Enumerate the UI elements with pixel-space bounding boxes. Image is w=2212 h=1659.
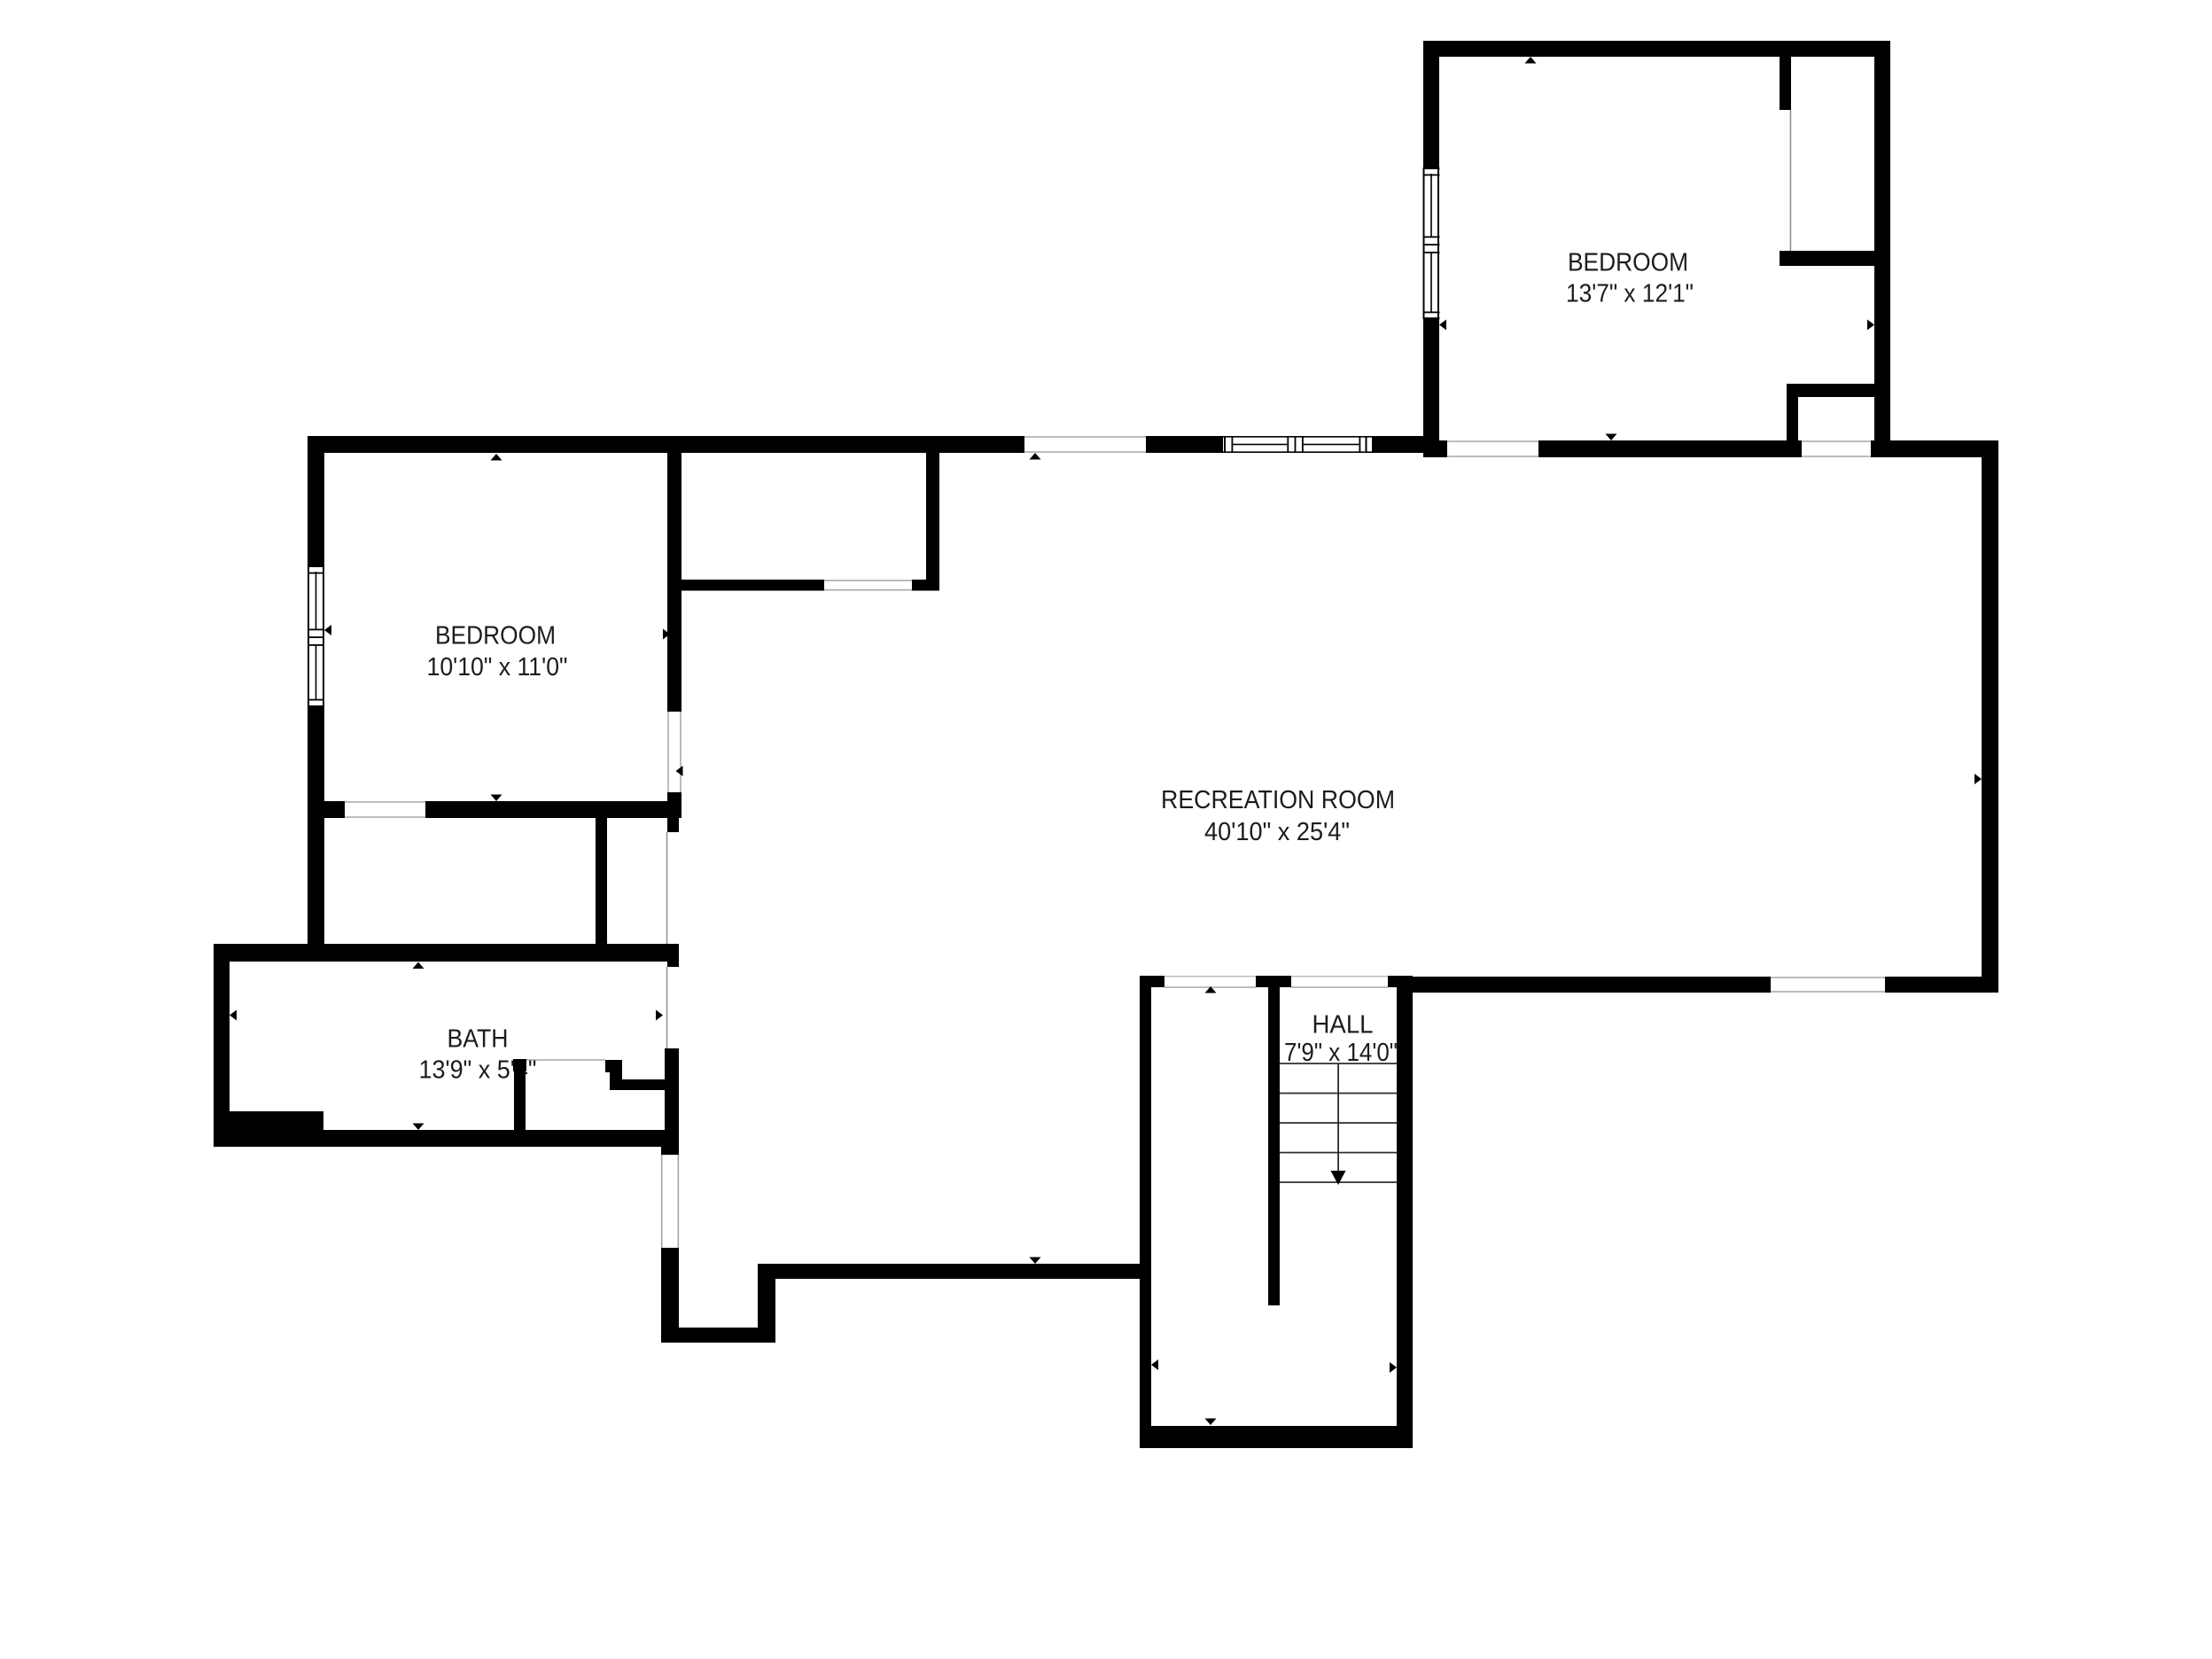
svg-text:RECREATION ROOM: RECREATION ROOM [1161, 786, 1395, 814]
svg-text:13'7" x 12'1": 13'7" x 12'1" [1566, 280, 1694, 308]
svg-text:BEDROOM: BEDROOM [1568, 249, 1688, 277]
svg-text:40'10" x 25'4": 40'10" x 25'4" [1204, 818, 1350, 846]
svg-text:10'10" x 11'0": 10'10" x 11'0" [427, 653, 568, 682]
svg-text:BATH: BATH [448, 1025, 509, 1054]
svg-text:7'9" x 14'0": 7'9" x 14'0" [1284, 1039, 1398, 1067]
svg-text:BEDROOM: BEDROOM [435, 622, 556, 650]
svg-text:HALL: HALL [1312, 1011, 1374, 1040]
